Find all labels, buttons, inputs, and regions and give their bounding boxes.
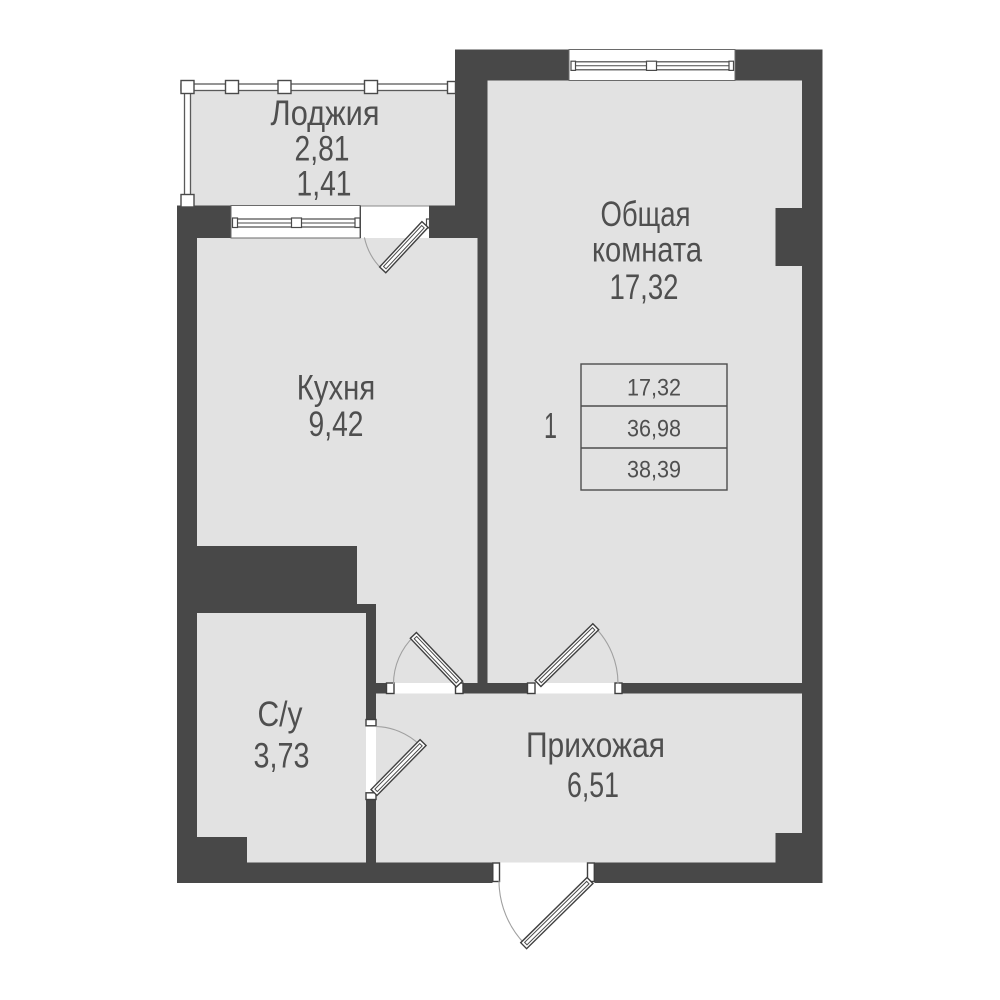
svg-text:17,32: 17,32 xyxy=(610,268,679,307)
svg-text:1: 1 xyxy=(544,405,557,446)
svg-text:3,73: 3,73 xyxy=(254,737,310,776)
svg-text:С/у: С/у xyxy=(258,695,303,734)
svg-text:Лоджия: Лоджия xyxy=(271,94,380,133)
svg-text:1,41: 1,41 xyxy=(297,164,352,203)
svg-text:6,51: 6,51 xyxy=(567,766,619,805)
svg-text:2,81: 2,81 xyxy=(295,129,350,168)
svg-text:Общая: Общая xyxy=(601,195,691,234)
svg-text:36,98: 36,98 xyxy=(627,416,681,443)
svg-text:9,42: 9,42 xyxy=(309,405,364,444)
svg-text:комната: комната xyxy=(592,231,702,270)
svg-text:Кухня: Кухня xyxy=(297,369,375,408)
svg-text:Прихожая: Прихожая xyxy=(526,726,665,765)
svg-text:17,32: 17,32 xyxy=(627,375,681,402)
svg-text:38,39: 38,39 xyxy=(627,457,681,484)
